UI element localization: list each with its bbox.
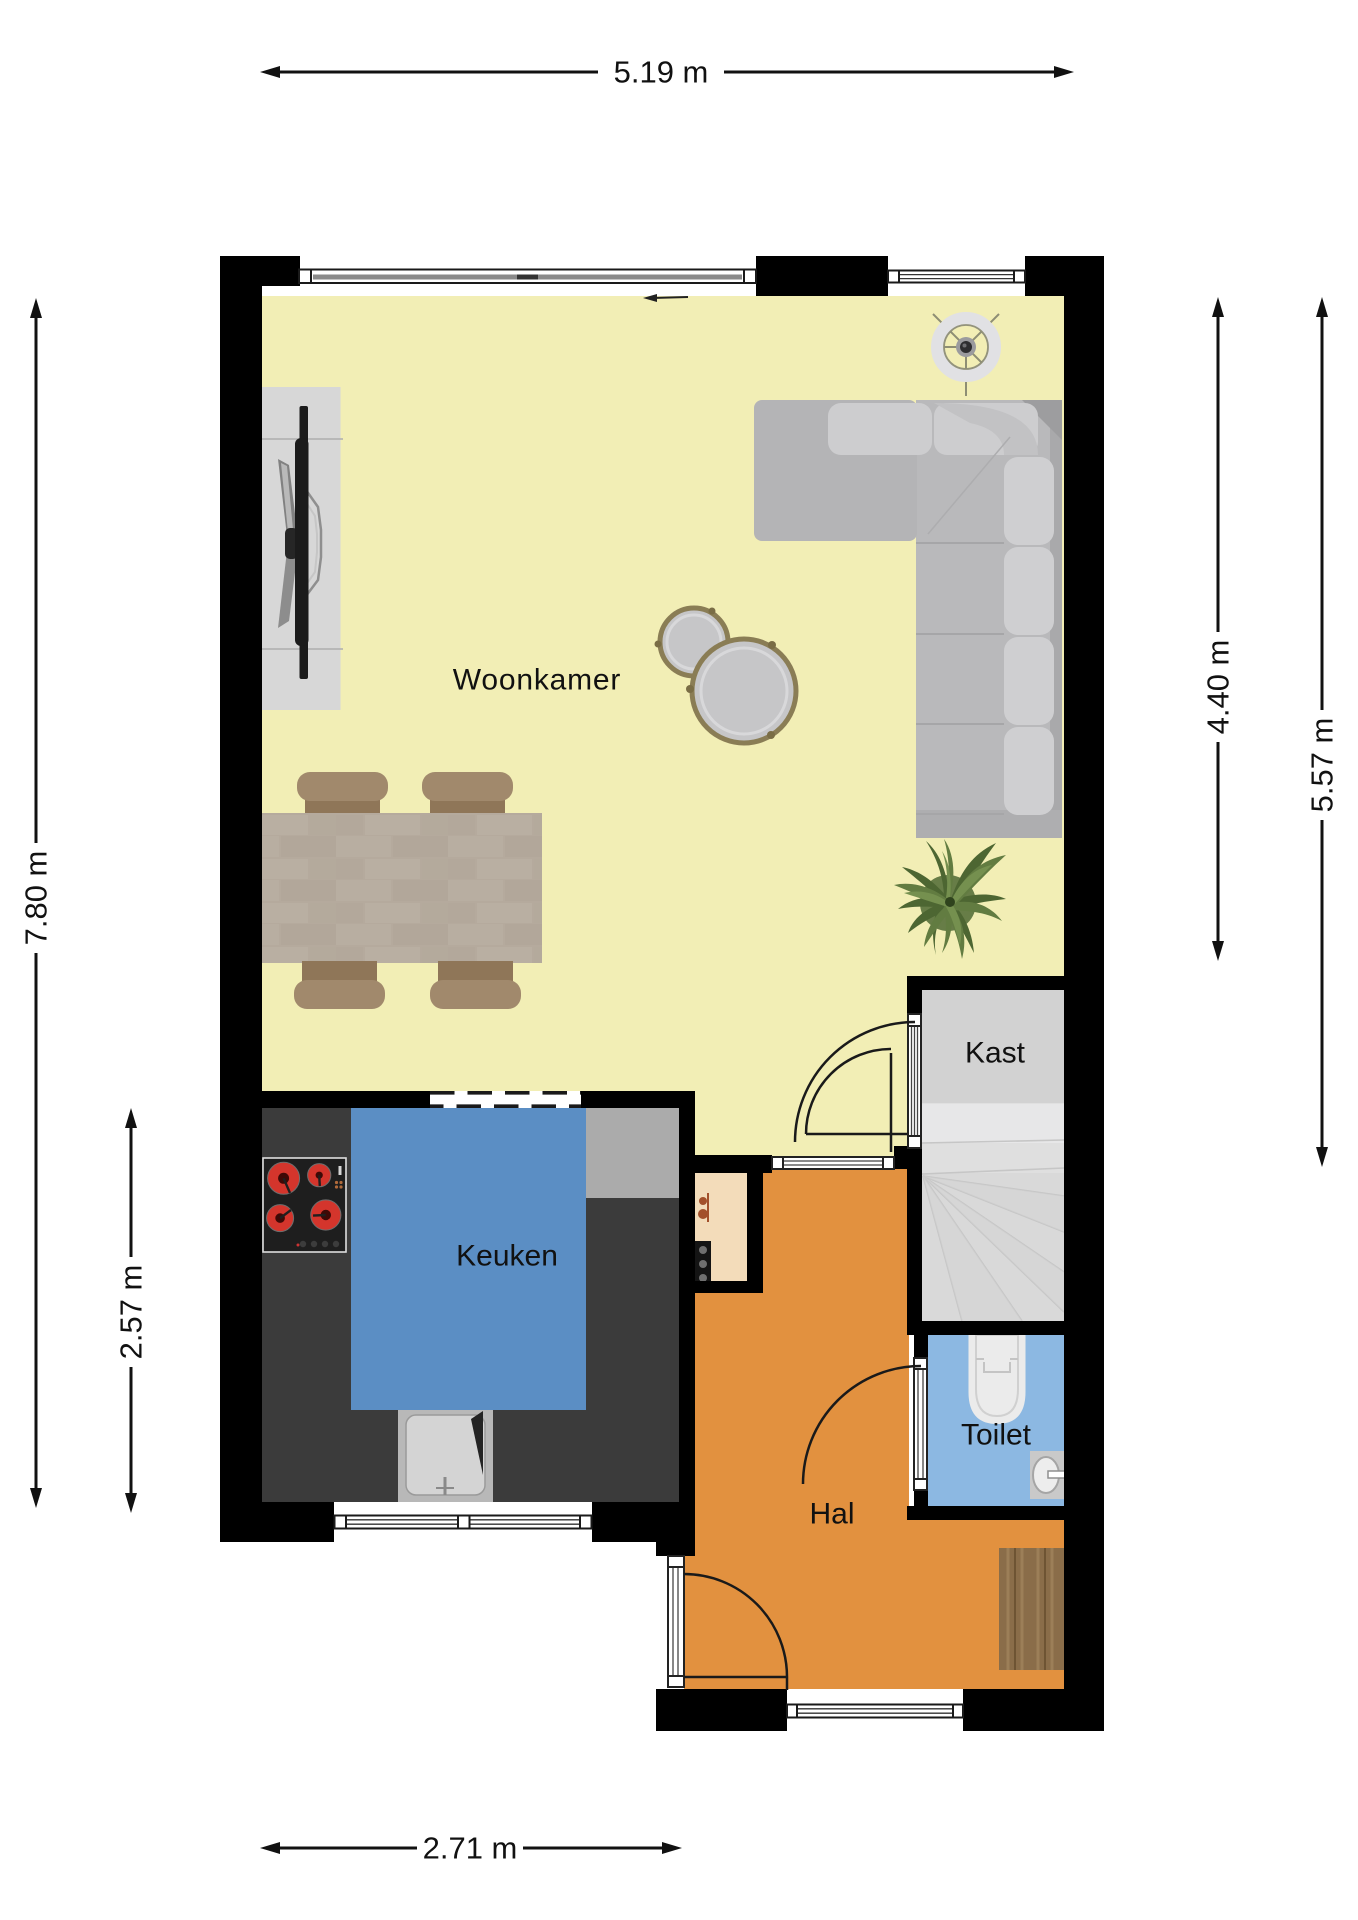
svg-text:2.71 m: 2.71 m bbox=[423, 1831, 518, 1866]
svg-text:7.80 m: 7.80 m bbox=[19, 851, 54, 946]
svg-text:Toilet: Toilet bbox=[961, 1419, 1032, 1452]
svg-text:5.19 m: 5.19 m bbox=[614, 55, 709, 90]
svg-text:Hal: Hal bbox=[809, 1498, 854, 1531]
svg-text:Keuken: Keuken bbox=[456, 1240, 558, 1273]
svg-text:5.57 m: 5.57 m bbox=[1305, 718, 1340, 813]
svg-text:2.57 m: 2.57 m bbox=[114, 1265, 149, 1360]
svg-text:Woonkamer: Woonkamer bbox=[453, 664, 621, 697]
svg-text:Kast: Kast bbox=[965, 1037, 1026, 1070]
svg-text:4.40 m: 4.40 m bbox=[1201, 640, 1236, 735]
